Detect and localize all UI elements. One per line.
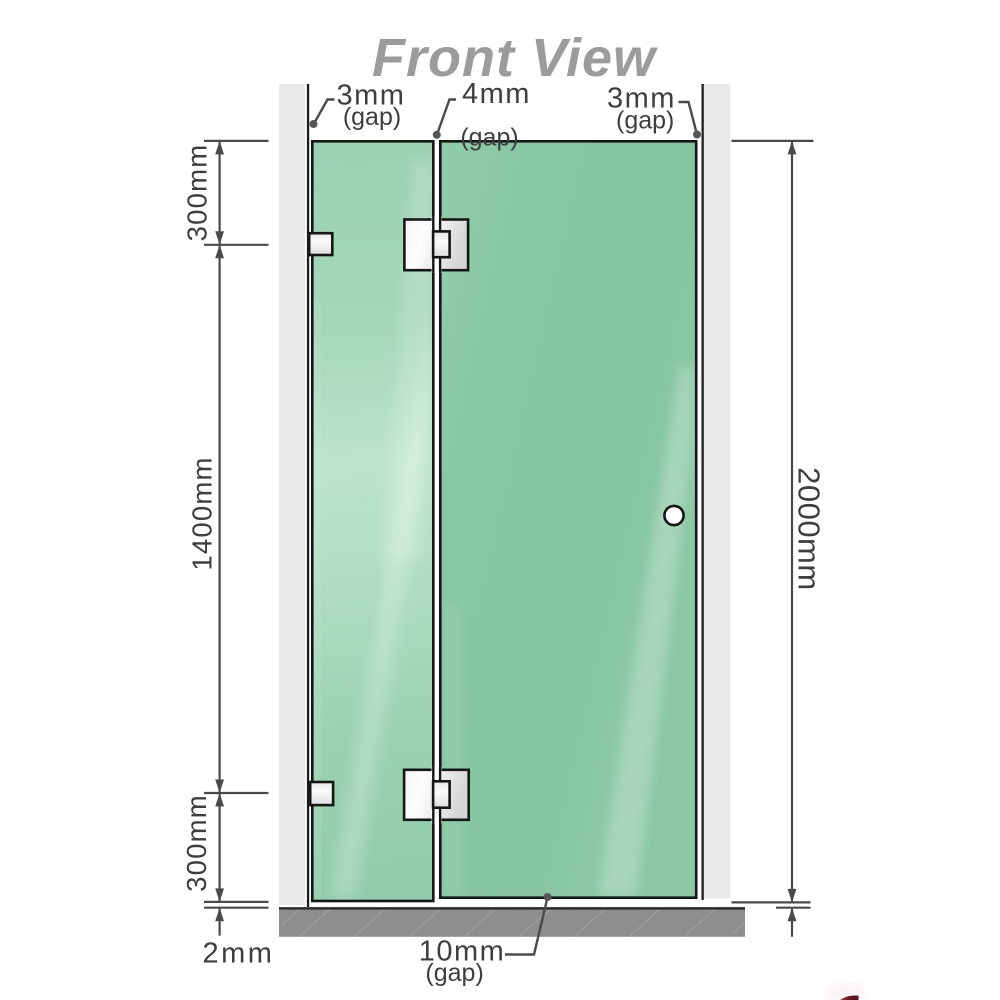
svg-text:(gap): (gap): [460, 123, 518, 151]
svg-text:300mm: 300mm: [182, 144, 213, 242]
svg-text:(gap): (gap): [425, 959, 483, 987]
svg-text:300mm: 300mm: [181, 794, 212, 892]
svg-text:(gap): (gap): [343, 103, 401, 131]
svg-text:2mm: 2mm: [203, 938, 275, 970]
svg-text:4mm: 4mm: [462, 78, 531, 110]
svg-text:2000mm: 2000mm: [792, 467, 827, 591]
svg-text:(gap): (gap): [616, 106, 674, 134]
svg-text:1400mm: 1400mm: [187, 456, 218, 570]
